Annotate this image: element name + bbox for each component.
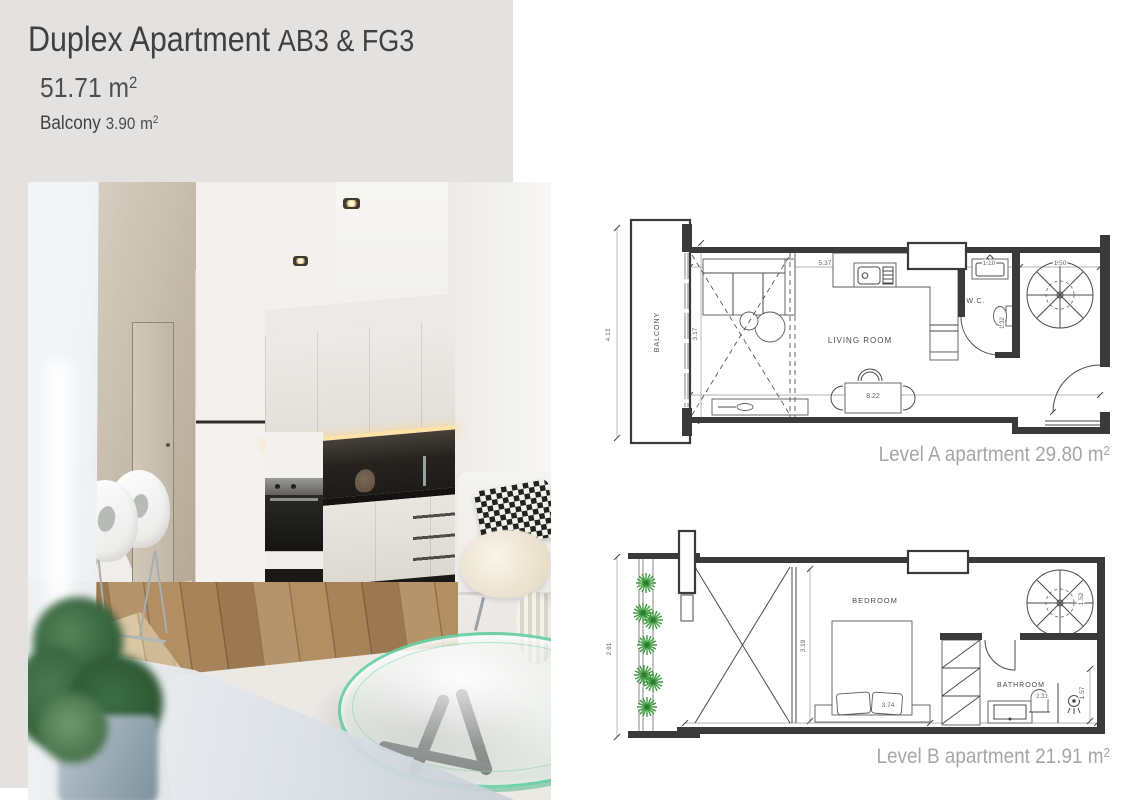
floor-plan-level-a: BALCONY LIVING ROOM W.C. 4.13 3.17 5.37 … xyxy=(600,195,1130,455)
balcony-unit: m xyxy=(140,114,153,133)
balcony-label: Balcony xyxy=(40,113,101,134)
plan-b-caption-sup: 2 xyxy=(1103,745,1110,760)
plan-a-living-room-label: LIVING ROOM xyxy=(828,336,892,345)
plan-a-caption-area: 29.80 xyxy=(1035,443,1082,466)
plan-b-dim-toilet: 2.31 xyxy=(1036,694,1048,700)
photo-oven-knob xyxy=(275,484,280,489)
plan-b-caption-area: 21.91 xyxy=(1035,745,1082,768)
plan-b-dim-shower: 1.57 xyxy=(1079,686,1086,699)
plan-a-dim-height: 4.13 xyxy=(605,328,612,341)
balcony-value: 3.90 xyxy=(106,114,136,133)
plan-a-furniture xyxy=(703,253,1108,425)
area-value: 51.71 xyxy=(40,72,102,103)
photo-glass-highlight xyxy=(46,362,72,612)
plan-a-balcony-label: BALCONY xyxy=(654,312,661,352)
photo-plant xyxy=(28,597,188,800)
photo-drawer-stack xyxy=(413,494,455,578)
photo-oven-column xyxy=(265,432,323,582)
photo-oven-door xyxy=(265,495,323,551)
plan-b-furniture xyxy=(815,570,1093,725)
photo-spotlight xyxy=(343,198,360,209)
total-area: 51.71 m2 xyxy=(40,72,137,104)
plan-b-terrace-plants xyxy=(633,559,663,731)
balcony-area: Balcony 3.90 m2 xyxy=(40,113,158,135)
plan-a-caption-unit: m xyxy=(1088,443,1104,466)
floor-plan-level-b: BEDROOM BATHROOM 2.91 3.19 3.74 1.52 2.3… xyxy=(600,525,1130,760)
plan-a-dim-top-left: 5.37 xyxy=(819,260,832,267)
photo-oven-knob xyxy=(291,484,296,489)
photo-door-handle xyxy=(166,443,170,447)
photo-oven-kick xyxy=(265,569,323,582)
photo-upper-cabinets xyxy=(265,319,455,442)
plan-a-dim-width: 8.22 xyxy=(866,393,880,400)
area-unit: m xyxy=(109,72,130,103)
plan-a-caption-label: Level A apartment xyxy=(879,443,1030,466)
plan-b-caption-unit: m xyxy=(1088,745,1104,768)
photo-spotlight xyxy=(293,256,308,266)
plan-b-bathroom-label: BATHROOM xyxy=(997,682,1045,689)
brochure-page: Duplex ApartmentAB3 & FG3 51.71 m2 Balco… xyxy=(0,0,1131,800)
plan-a-dim-wc: 1.32 xyxy=(1000,317,1006,329)
plan-a-dim-balcony-depth: 3.17 xyxy=(692,327,699,340)
photo-tall-cabinet xyxy=(195,270,266,585)
plan-b-caption-label: Level B apartment xyxy=(877,745,1030,768)
balcony-sup: 2 xyxy=(153,114,159,126)
plan-a-wc-label: W.C. xyxy=(966,298,985,305)
plan-b-caption: Level B apartment 21.91 m2 xyxy=(741,745,1110,769)
photo-fluffy-pillow xyxy=(460,530,550,598)
plan-b-dim-stairs: 1.52 xyxy=(1078,592,1085,605)
photo-oven-drawer xyxy=(265,551,323,570)
photo-oven-handle xyxy=(270,498,318,501)
plan-b-bedroom-label: BEDROOM xyxy=(852,596,898,605)
plan-b-dim-bed: 3.74 xyxy=(882,702,895,709)
plan-b-dim-height: 2.91 xyxy=(606,642,613,655)
title-main: Duplex Apartment xyxy=(28,20,270,59)
plan-a-caption: Level A apartment 29.80 m2 xyxy=(741,443,1110,467)
plan-b-void-cross xyxy=(695,567,796,723)
plan-a-dim-top-mid: 1.10 xyxy=(983,260,996,267)
plan-a-dim-top-right: 1.50 xyxy=(1054,260,1067,267)
photo-plant-leaves xyxy=(38,693,108,763)
title-code: AB3 & FG3 xyxy=(278,23,414,58)
photo-faucet xyxy=(423,456,426,486)
page-title: Duplex ApartmentAB3 & FG3 xyxy=(28,20,414,60)
plan-b-dim-void-depth: 3.19 xyxy=(800,639,807,652)
plan-a-caption-sup: 2 xyxy=(1103,443,1110,458)
apartment-photo xyxy=(28,182,551,800)
area-sup: 2 xyxy=(129,73,137,92)
